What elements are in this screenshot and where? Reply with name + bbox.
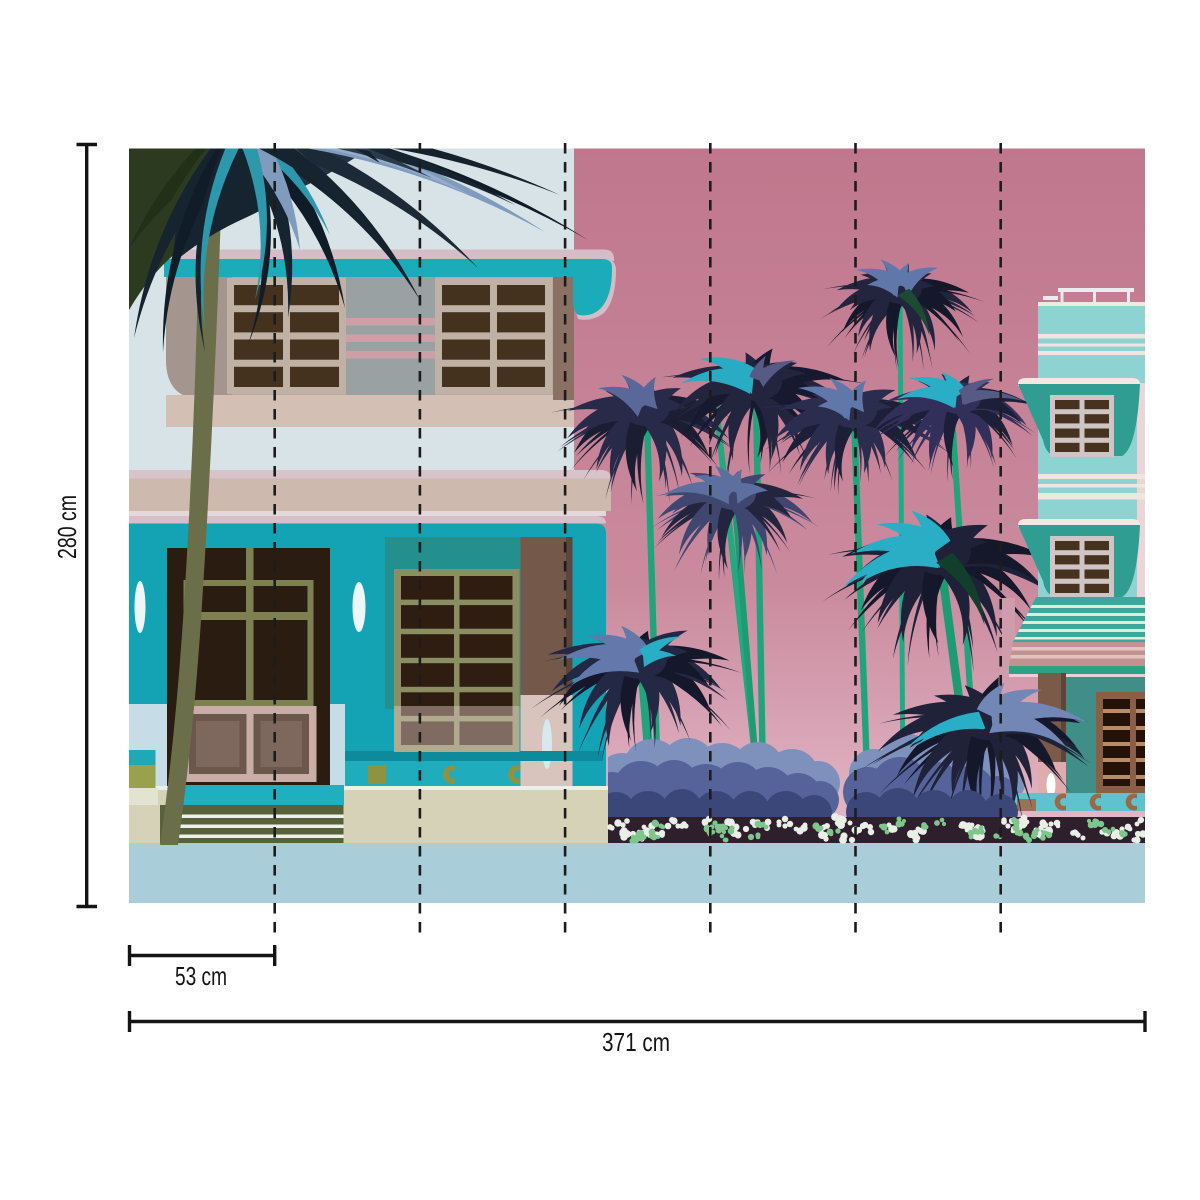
svg-text:280 cm: 280 cm	[52, 495, 82, 559]
svg-text:53 cm: 53 cm	[175, 961, 227, 991]
svg-text:371 cm: 371 cm	[602, 1027, 670, 1057]
